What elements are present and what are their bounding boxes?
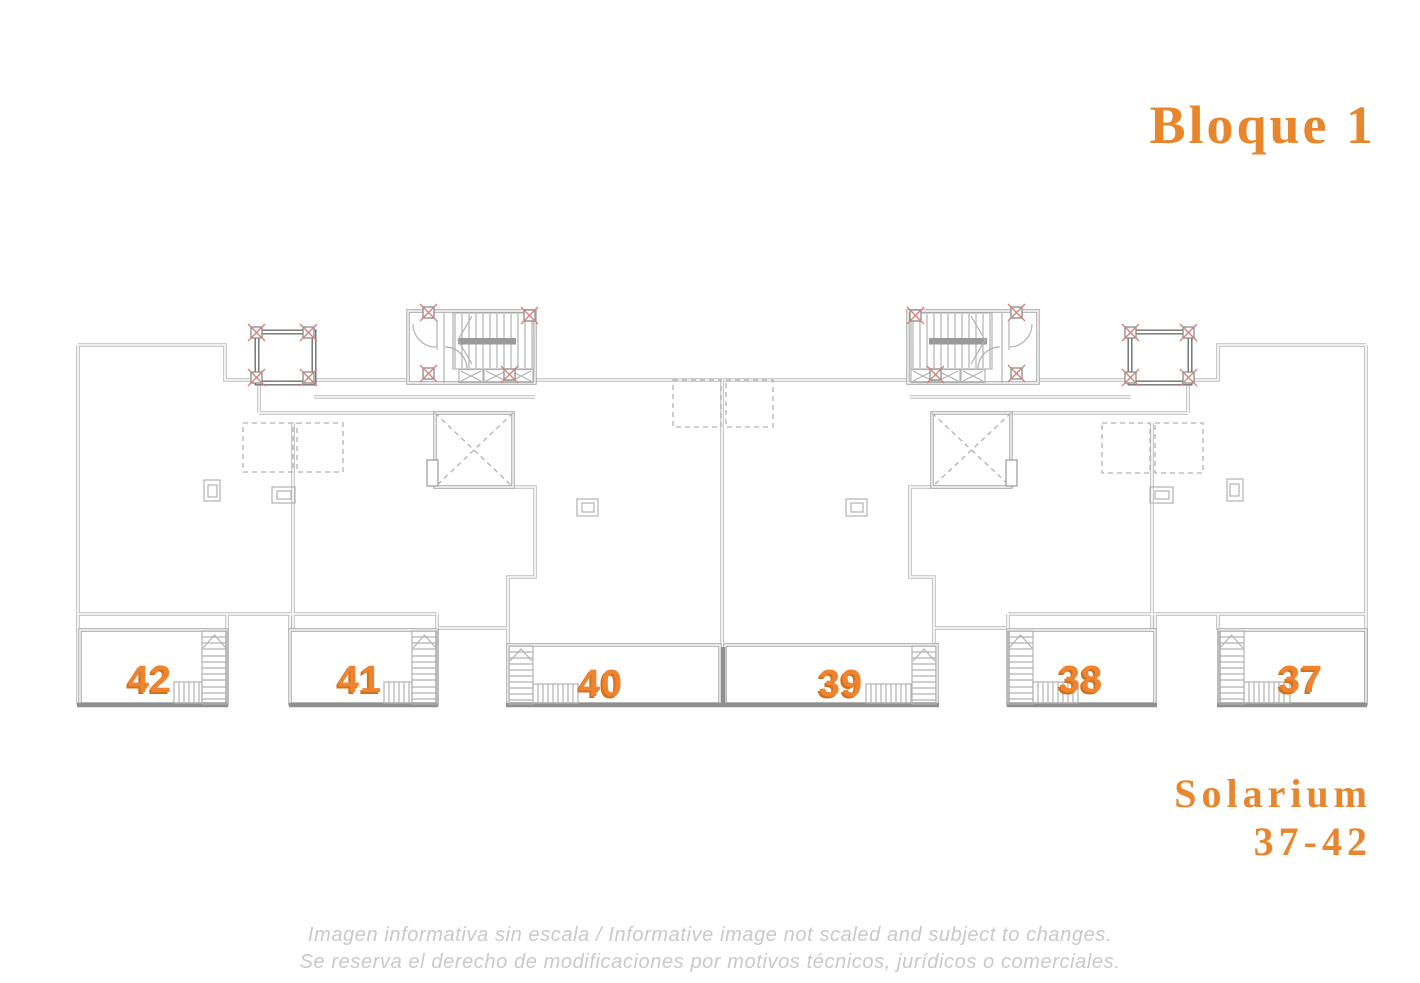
solarium-label-line1: Solarium — [1174, 770, 1372, 818]
door-arc-right-bottom — [978, 347, 1000, 369]
disclaimer-line2: Se reserva el derecho de modificaciones … — [0, 949, 1420, 976]
solarium-label: Solarium 37-42 — [1174, 770, 1372, 866]
stairs-unit-40 — [509, 646, 578, 704]
page: Bloque 1 42 41 40 39 38 37 Solarium 37-4… — [0, 0, 1420, 983]
core-divider-left — [437, 313, 444, 383]
solarium-label-line2: 37-42 — [1174, 818, 1372, 866]
shaft-door-left — [427, 460, 438, 486]
unit-label-39: 39 — [819, 665, 863, 703]
terrace-base-lines — [77, 647, 1367, 705]
core-divider-right — [1002, 313, 1009, 383]
unit-label-42: 42 — [128, 661, 172, 699]
door-arc-right-top — [1010, 324, 1032, 347]
unit-label-38: 38 — [1059, 661, 1103, 699]
skylight-shaft-right — [932, 413, 1017, 487]
unit-label-37: 37 — [1279, 661, 1323, 699]
ac-units-left — [459, 370, 533, 383]
stair-landing-right — [929, 338, 987, 345]
skylight-shaft-left — [427, 413, 513, 487]
ac-units-right — [911, 370, 985, 383]
disclaimer-line1: Imagen informativa sin escala / Informat… — [0, 922, 1420, 949]
disclaimer: Imagen informativa sin escala / Informat… — [0, 922, 1420, 976]
stair-landing-left — [458, 338, 516, 345]
structural-columns — [248, 304, 1197, 386]
pergola-frames — [257, 332, 1190, 383]
stairs-unit-39 — [866, 646, 936, 704]
shaft-door-right — [1006, 460, 1017, 486]
unit-label-41: 41 — [338, 661, 382, 699]
unit-label-40: 40 — [579, 665, 623, 703]
door-arc-left-top — [413, 324, 436, 347]
stairs-unit-42 — [174, 631, 227, 704]
page-title: Bloque 1 — [1149, 98, 1376, 152]
stairs-unit-41 — [384, 631, 437, 704]
